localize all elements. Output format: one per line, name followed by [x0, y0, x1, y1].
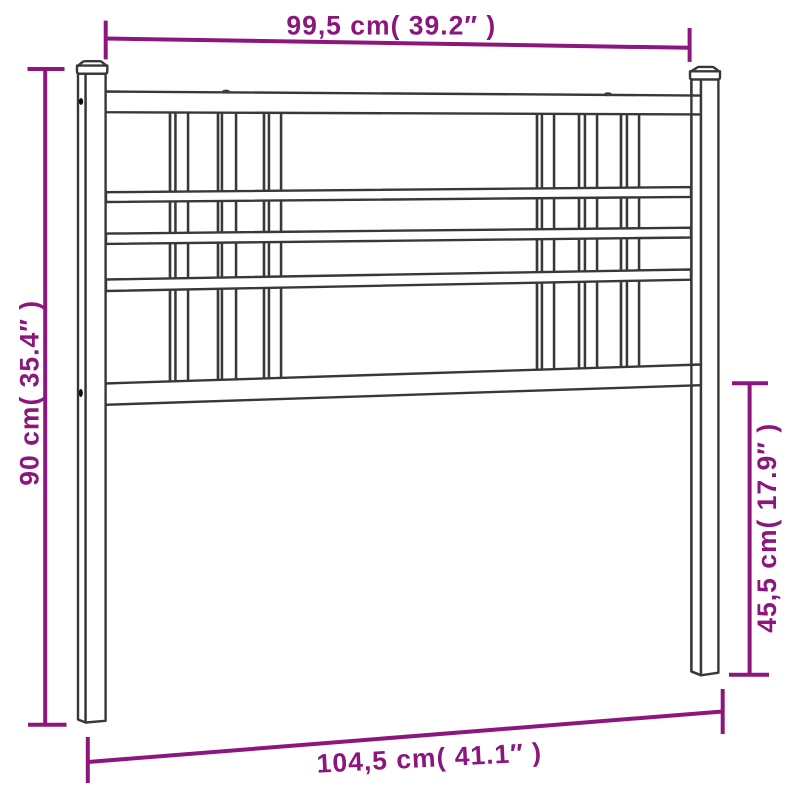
svg-text:99,5 cm( 39.2″ ): 99,5 cm( 39.2″ ) [286, 11, 496, 41]
svg-text:90 cm( 35.4″ ): 90 cm( 35.4″ ) [14, 300, 44, 486]
svg-text:45,5 cm( 17.9″ ): 45,5 cm( 17.9″ ) [752, 423, 782, 633]
